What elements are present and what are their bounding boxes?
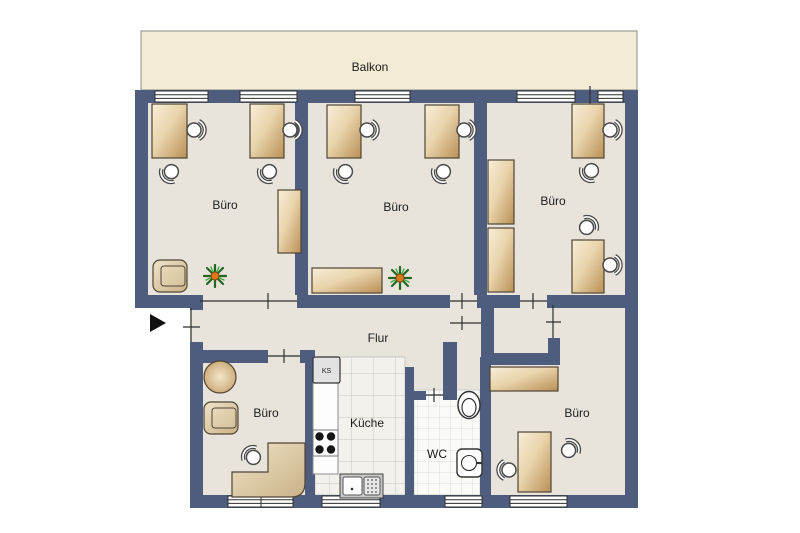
desk bbox=[152, 104, 187, 158]
fridge-label: KS bbox=[322, 368, 332, 375]
kitchen-counter bbox=[313, 383, 338, 474]
armchair bbox=[204, 402, 238, 434]
balcony: Balkon bbox=[141, 31, 637, 90]
balcony-label: Balkon bbox=[352, 60, 389, 74]
hallway-label: Flur bbox=[368, 331, 389, 345]
window bbox=[228, 496, 261, 507]
armchair bbox=[153, 260, 187, 292]
desk bbox=[572, 240, 604, 293]
desk bbox=[572, 104, 604, 158]
plant bbox=[389, 267, 411, 289]
desk bbox=[250, 104, 284, 158]
window bbox=[240, 91, 297, 102]
sideboard bbox=[278, 190, 301, 253]
sideboard bbox=[490, 367, 558, 391]
wc-label: WC bbox=[427, 447, 447, 461]
toilet bbox=[458, 392, 480, 419]
window bbox=[510, 496, 567, 507]
stove bbox=[313, 430, 338, 456]
room-label: Büro bbox=[540, 194, 566, 208]
sideboard bbox=[312, 268, 382, 293]
desk bbox=[425, 105, 459, 158]
kitchen-sink bbox=[340, 474, 383, 498]
window bbox=[445, 496, 482, 507]
kitchen-label: Küche bbox=[350, 416, 384, 430]
washbasin bbox=[457, 449, 482, 477]
round-table bbox=[204, 361, 236, 393]
window bbox=[517, 91, 575, 102]
floor-plan-canvas: Balkon bbox=[0, 0, 800, 533]
cabinet bbox=[488, 160, 514, 224]
cabinet bbox=[488, 228, 514, 292]
window bbox=[355, 91, 410, 102]
fridge: KS bbox=[313, 357, 340, 383]
room-label: Büro bbox=[564, 406, 590, 420]
floor-plan-drawing: Balkon bbox=[0, 0, 800, 533]
room-label: Büro bbox=[212, 198, 238, 212]
desk bbox=[518, 432, 551, 492]
room-label: Büro bbox=[253, 406, 279, 420]
desk bbox=[327, 105, 361, 158]
window bbox=[598, 91, 623, 102]
plant bbox=[204, 265, 226, 287]
entrance-arrow-icon bbox=[150, 314, 166, 332]
window bbox=[155, 91, 208, 102]
window bbox=[261, 496, 293, 507]
room-label: Büro bbox=[383, 200, 409, 214]
